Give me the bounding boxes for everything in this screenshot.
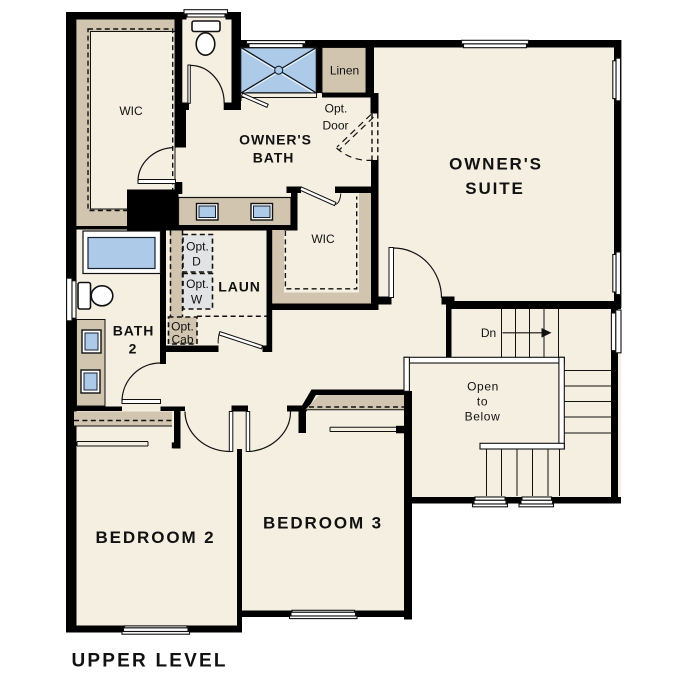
svg-text:Dn: Dn — [481, 326, 496, 340]
svg-text:to: to — [477, 395, 488, 409]
svg-text:Door: Door — [322, 119, 348, 133]
svg-text:LAUN: LAUN — [218, 279, 260, 295]
svg-text:OWNER'S: OWNER'S — [239, 132, 312, 148]
svg-text:WIC: WIC — [311, 232, 335, 246]
svg-text:BATH: BATH — [253, 149, 294, 165]
svg-text:Opt.: Opt. — [325, 102, 348, 116]
svg-text:D: D — [192, 255, 201, 269]
svg-text:OWNER'S: OWNER'S — [449, 155, 543, 174]
svg-text:BEDROOM 2: BEDROOM 2 — [95, 528, 215, 547]
svg-text:W: W — [191, 293, 203, 307]
svg-text:BATH: BATH — [113, 323, 154, 339]
svg-text:Cab: Cab — [171, 333, 193, 347]
svg-text:UPPER LEVEL: UPPER LEVEL — [72, 651, 228, 672]
svg-text:Opt.: Opt. — [186, 277, 209, 291]
svg-text:Opt.: Opt. — [186, 240, 209, 254]
svg-text:Open: Open — [467, 380, 499, 394]
svg-text:BEDROOM 3: BEDROOM 3 — [263, 514, 383, 533]
svg-text:Below: Below — [465, 410, 501, 424]
svg-text:SUITE: SUITE — [465, 179, 525, 198]
svg-text:Opt.: Opt. — [171, 320, 194, 334]
svg-text:WIC: WIC — [119, 104, 143, 118]
svg-text:Linen: Linen — [330, 64, 359, 78]
svg-text:2: 2 — [129, 341, 138, 357]
